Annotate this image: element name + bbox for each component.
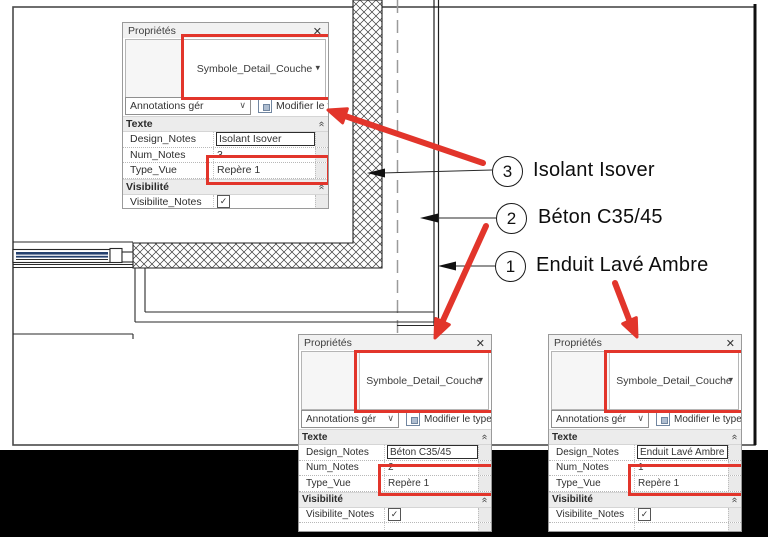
tag-number: 1 (506, 257, 515, 277)
row-strip (315, 148, 328, 163)
row-strip (478, 508, 491, 523)
modify-type-icon (406, 412, 420, 426)
collapse-icon[interactable]: « (479, 497, 489, 503)
category-filter-combobox[interactable]: Annotations gér ∨ (125, 97, 251, 115)
type-name: Symbole_Detail_Couche (616, 375, 732, 387)
type-preview-box (126, 40, 184, 97)
type-name: Symbole_Detail_Couche (197, 63, 313, 75)
row-type-vue: Type_Vue Repère 1 (299, 476, 491, 492)
modify-type-button[interactable]: Modifier le type (403, 410, 492, 428)
panel-title: Propriétés (554, 337, 602, 349)
type-selector[interactable]: Symbole_Detail_Couche ▾ (301, 351, 489, 410)
section-visibilite[interactable]: Visibilité « (299, 492, 491, 508)
tag-number: 2 (507, 209, 516, 229)
row-strip (478, 461, 491, 476)
chevron-down-icon: ∨ (387, 414, 394, 424)
tag-label-isolant[interactable]: Isolant Isover (533, 159, 655, 182)
type-selector[interactable]: Symbole_Detail_Couche ▾ (125, 39, 326, 98)
section-texte[interactable]: Texte « (123, 116, 328, 132)
dropdown-icon[interactable]: ▾ (315, 63, 320, 73)
modify-type-label: Modifier le type (276, 100, 329, 112)
type-name: Symbole_Detail_Couche (366, 375, 482, 387)
section-texte[interactable]: Texte « (549, 429, 741, 445)
chevron-down-icon: ∨ (239, 101, 246, 111)
row-strip (728, 445, 741, 460)
category-filter-combobox[interactable]: Annotations gér ∨ (301, 410, 399, 428)
panel-titlebar[interactable]: Propriétés ✕ (299, 335, 491, 350)
filter-label: Annotations gér (306, 414, 376, 425)
row-strip (478, 445, 491, 460)
modify-type-icon (258, 99, 272, 113)
row-visibilite-notes: Visibilite_Notes ✓ (299, 508, 491, 524)
row-strip (478, 476, 491, 491)
section-texte[interactable]: Texte « (299, 429, 491, 445)
design-notes-field[interactable]: Isolant Isover (216, 132, 315, 146)
dropdown-icon[interactable]: ▾ (728, 375, 733, 385)
modify-type-icon (656, 412, 670, 426)
section-visibilite[interactable]: Visibilité « (549, 492, 741, 508)
row-strip (728, 476, 741, 491)
tag-label-enduit[interactable]: Enduit Lavé Ambre (536, 254, 708, 277)
num-notes-field[interactable]: 1 (634, 461, 728, 476)
row-empty (549, 523, 741, 532)
modify-type-label: Modifier le type (424, 414, 492, 425)
properties-panel-enduit: Propriétés ✕ Symbole_Detail_Couche ▾ Ann… (548, 334, 742, 532)
close-icon[interactable]: ✕ (313, 25, 322, 38)
close-icon[interactable]: ✕ (726, 337, 735, 350)
num-notes-field[interactable]: 2 (384, 461, 478, 476)
chevron-down-icon: ∨ (637, 414, 644, 424)
collapse-icon[interactable]: « (729, 497, 739, 503)
row-visibilite-notes: Visibilite_Notes ✓ (549, 508, 741, 524)
row-strip (478, 523, 491, 532)
modify-type-button[interactable]: Modifier le type (653, 410, 742, 428)
wall-return-lines (13, 268, 438, 339)
row-strip (728, 523, 741, 532)
window-plan-symbol[interactable] (13, 242, 133, 268)
collapse-icon[interactable]: « (729, 434, 739, 440)
design-notes-field[interactable]: Enduit Lavé Ambre (637, 445, 728, 459)
row-visibilite-notes: Visibilite_Notes ✓ (123, 195, 328, 210)
row-design-notes: Design_Notes Béton C35/45 (299, 445, 491, 461)
row-type-vue: Type_Vue Repère 1 (123, 163, 328, 179)
category-filter-combobox[interactable]: Annotations gér ∨ (551, 410, 649, 428)
panel-titlebar[interactable]: Propriétés ✕ (123, 23, 328, 38)
num-notes-field[interactable]: 3 (213, 148, 315, 163)
row-strip (315, 163, 328, 178)
properties-panel-isolant: Propriétés ✕ Symbole_Detail_Couche ▾ Ann… (122, 22, 329, 209)
type-preview-box (302, 352, 360, 409)
row-strip (728, 508, 741, 523)
filter-label: Annotations gér (130, 100, 204, 112)
row-strip (728, 461, 741, 476)
collapse-icon[interactable]: « (316, 121, 326, 127)
row-design-notes: Design_Notes Isolant Isover (123, 132, 328, 148)
close-icon[interactable]: ✕ (476, 337, 485, 350)
tag-label-beton[interactable]: Béton C35/45 (538, 206, 663, 229)
type-vue-field[interactable]: Repère 1 (634, 476, 728, 491)
tag-circle-3[interactable]: 3 (492, 156, 523, 187)
tag-number: 3 (503, 162, 512, 182)
screenshot-root: { "colors": { "highlight_red": "#e2352b"… (0, 0, 768, 537)
row-design-notes: Design_Notes Enduit Lavé Ambre (549, 445, 741, 461)
row-strip (315, 132, 328, 147)
row-empty (299, 523, 491, 532)
visibilite-checkbox[interactable]: ✓ (638, 508, 651, 521)
row-num-notes: Num_Notes 2 (299, 461, 491, 477)
panel-titlebar[interactable]: Propriétés ✕ (549, 335, 741, 350)
design-notes-field[interactable]: Béton C35/45 (387, 445, 478, 459)
dropdown-icon[interactable]: ▾ (478, 375, 483, 385)
visibilite-checkbox[interactable]: ✓ (388, 508, 401, 521)
panel-title: Propriétés (128, 25, 176, 37)
properties-panel-beton: Propriétés ✕ Symbole_Detail_Couche ▾ Ann… (298, 334, 492, 532)
type-vue-field[interactable]: Repère 1 (384, 476, 478, 491)
tag-circle-1[interactable]: 1 (495, 251, 526, 282)
row-strip (315, 195, 328, 210)
filter-label: Annotations gér (556, 414, 626, 425)
modify-type-label: Modifier le type (674, 414, 742, 425)
type-vue-field[interactable]: Repère 1 (213, 163, 315, 178)
panel-title: Propriétés (304, 337, 352, 349)
section-visibilite[interactable]: Visibilité « (123, 179, 328, 195)
collapse-icon[interactable]: « (479, 434, 489, 440)
modify-type-button[interactable]: Modifier le type (255, 97, 329, 115)
row-num-notes: Num_Notes 1 (549, 461, 741, 477)
collapse-icon[interactable]: « (316, 184, 326, 190)
type-preview-box (552, 352, 610, 409)
visibilite-checkbox[interactable]: ✓ (217, 195, 230, 208)
wall-layer-lines[interactable] (434, 0, 439, 326)
row-type-vue: Type_Vue Repère 1 (549, 476, 741, 492)
type-selector[interactable]: Symbole_Detail_Couche ▾ (551, 351, 739, 410)
row-num-notes: Num_Notes 3 (123, 148, 328, 164)
tag-circle-2[interactable]: 2 (496, 203, 527, 234)
